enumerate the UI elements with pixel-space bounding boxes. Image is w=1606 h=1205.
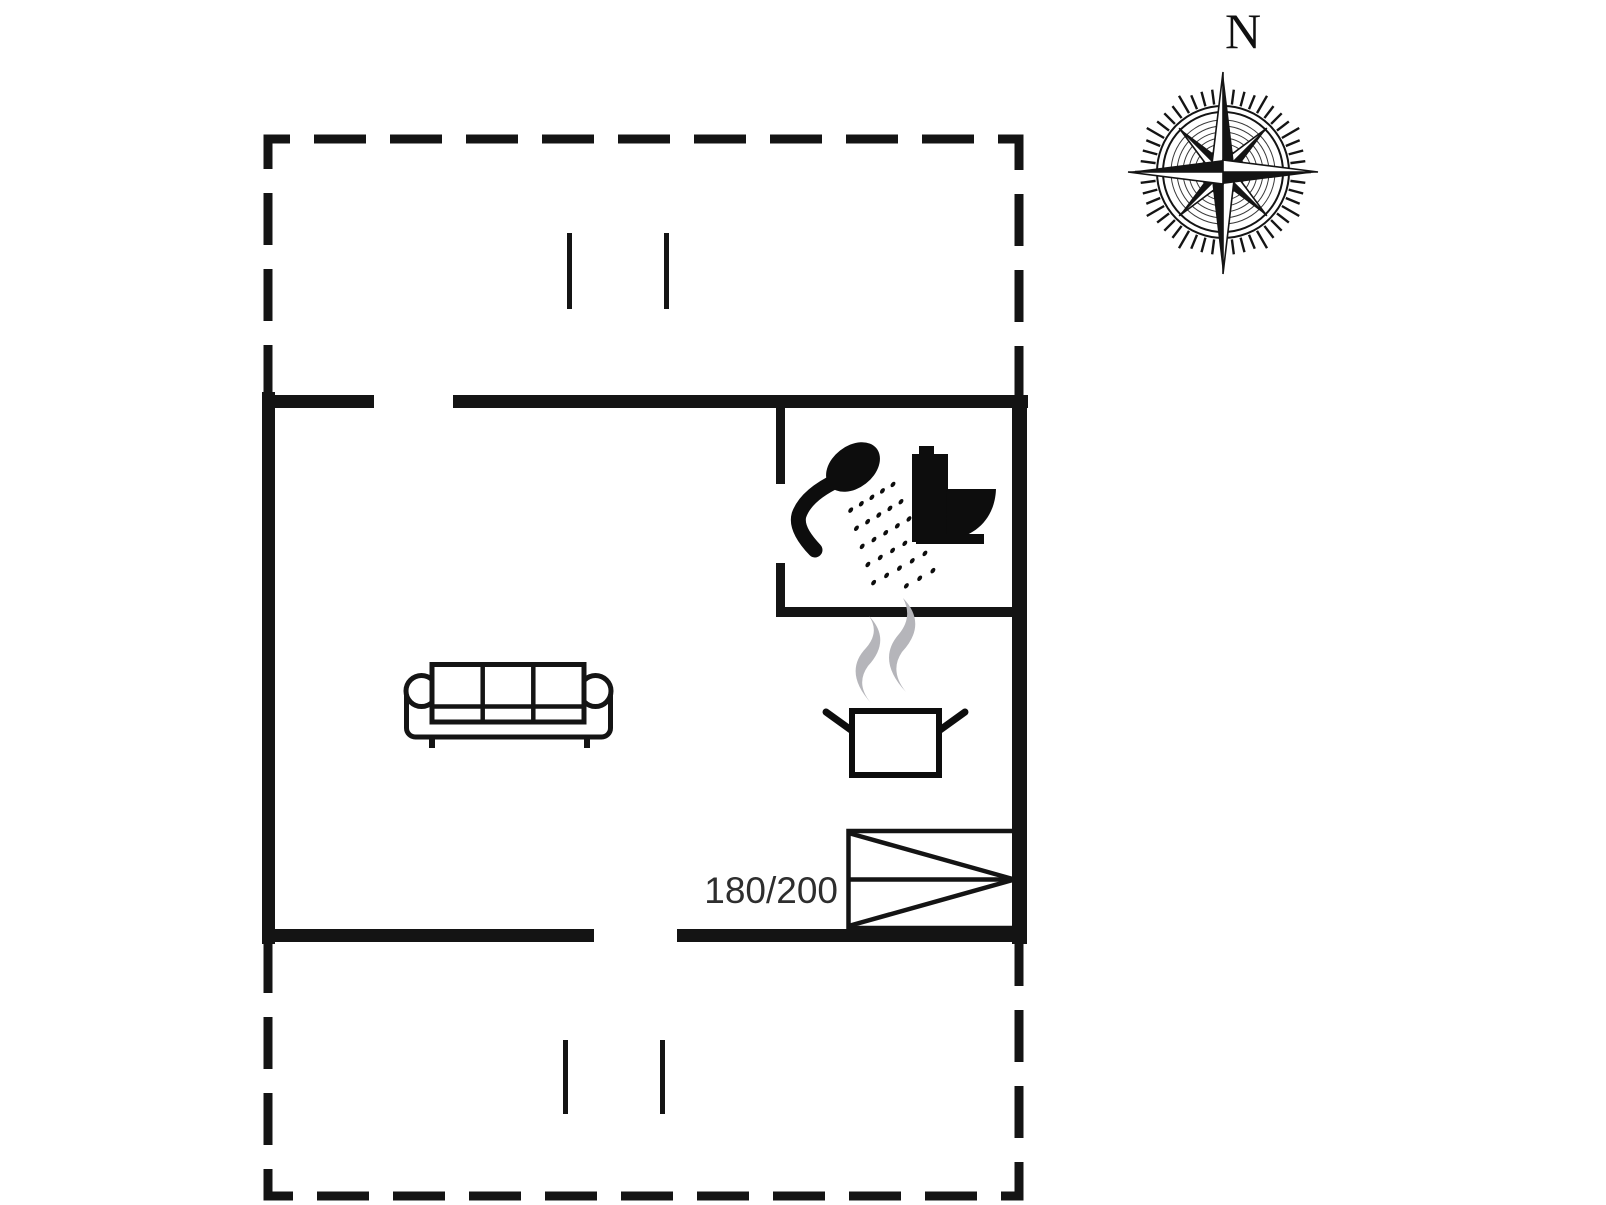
wall-left <box>262 392 275 944</box>
door-post-mark <box>660 1040 665 1114</box>
compass-rose-icon: N <box>1128 3 1318 274</box>
compass-north-label: N <box>1225 3 1261 59</box>
bathroom-wall-south <box>776 607 1012 617</box>
toilet-icon <box>912 446 996 544</box>
sofa-foot <box>429 737 435 748</box>
door-post-mark <box>567 233 572 309</box>
door-post-mark <box>563 1040 568 1114</box>
toilet-tank <box>912 454 948 542</box>
terrace-south <box>268 941 1019 1196</box>
steam-icon <box>856 616 881 703</box>
wall-top-left-segment <box>262 395 374 408</box>
wall-bottom-right-segment <box>677 929 1027 942</box>
wall-top-right-segment <box>453 395 1028 408</box>
sofa-cushions <box>432 665 584 723</box>
cooking-pot-icon <box>852 711 939 775</box>
double-bed-icon: 180/200 <box>704 831 1014 928</box>
terrace-north-dashed-outline <box>268 139 1019 397</box>
toilet-flush-button <box>919 446 934 455</box>
compass-graphics <box>1128 72 1318 274</box>
sofa-foot <box>584 737 590 748</box>
kitchen-stove <box>826 598 965 775</box>
bed-size-label: 180/200 <box>704 870 838 911</box>
bathroom-wall-west-upper <box>776 408 785 484</box>
terrace-south-dashed-outline <box>268 941 1019 1196</box>
floor-plan-canvas: 180/200 N <box>0 0 1606 1205</box>
terrace-north <box>268 139 1019 397</box>
bed-diagonal-top <box>849 833 1015 880</box>
pot-handle-left <box>826 712 851 730</box>
shower-handle <box>798 480 838 550</box>
door-post-mark <box>664 233 669 309</box>
sofa-icon <box>406 665 611 749</box>
toilet-base <box>916 534 984 544</box>
pot-handle-right <box>940 712 965 730</box>
wall-bottom-left-segment <box>262 929 594 942</box>
bed-diagonal-bottom <box>849 880 1015 927</box>
floor-plan: 180/200 N <box>0 0 1606 1205</box>
bathroom-icons <box>798 432 996 590</box>
toilet-bowl <box>946 489 996 540</box>
